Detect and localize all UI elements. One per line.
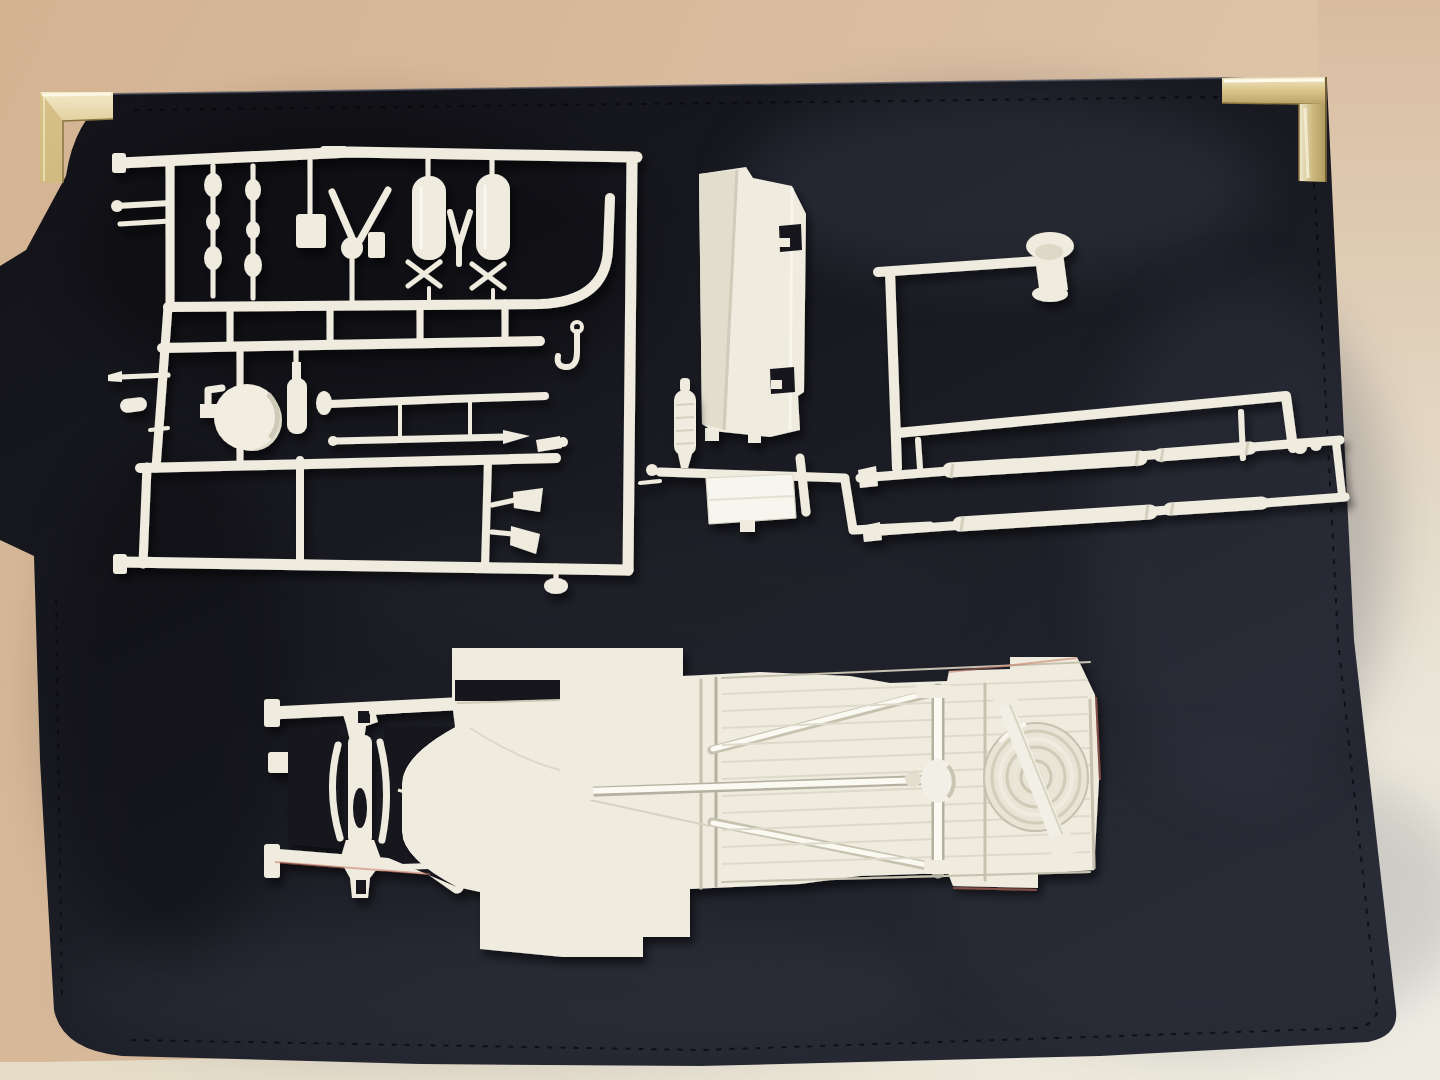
panel-slot-lower [770, 367, 795, 394]
cab-tab-shadow [455, 680, 560, 701]
panel-tab [705, 428, 719, 441]
panel-tab [748, 432, 761, 443]
front-stub [268, 752, 290, 773]
photo-scene: White plastic model kit sprues and a tru… [0, 0, 1440, 1080]
cab-panel-part [699, 167, 806, 443]
photo-model-kit-parts: White plastic model kit sprues and a tru… [0, 0, 1440, 1080]
panel-slot-upper [779, 224, 802, 252]
